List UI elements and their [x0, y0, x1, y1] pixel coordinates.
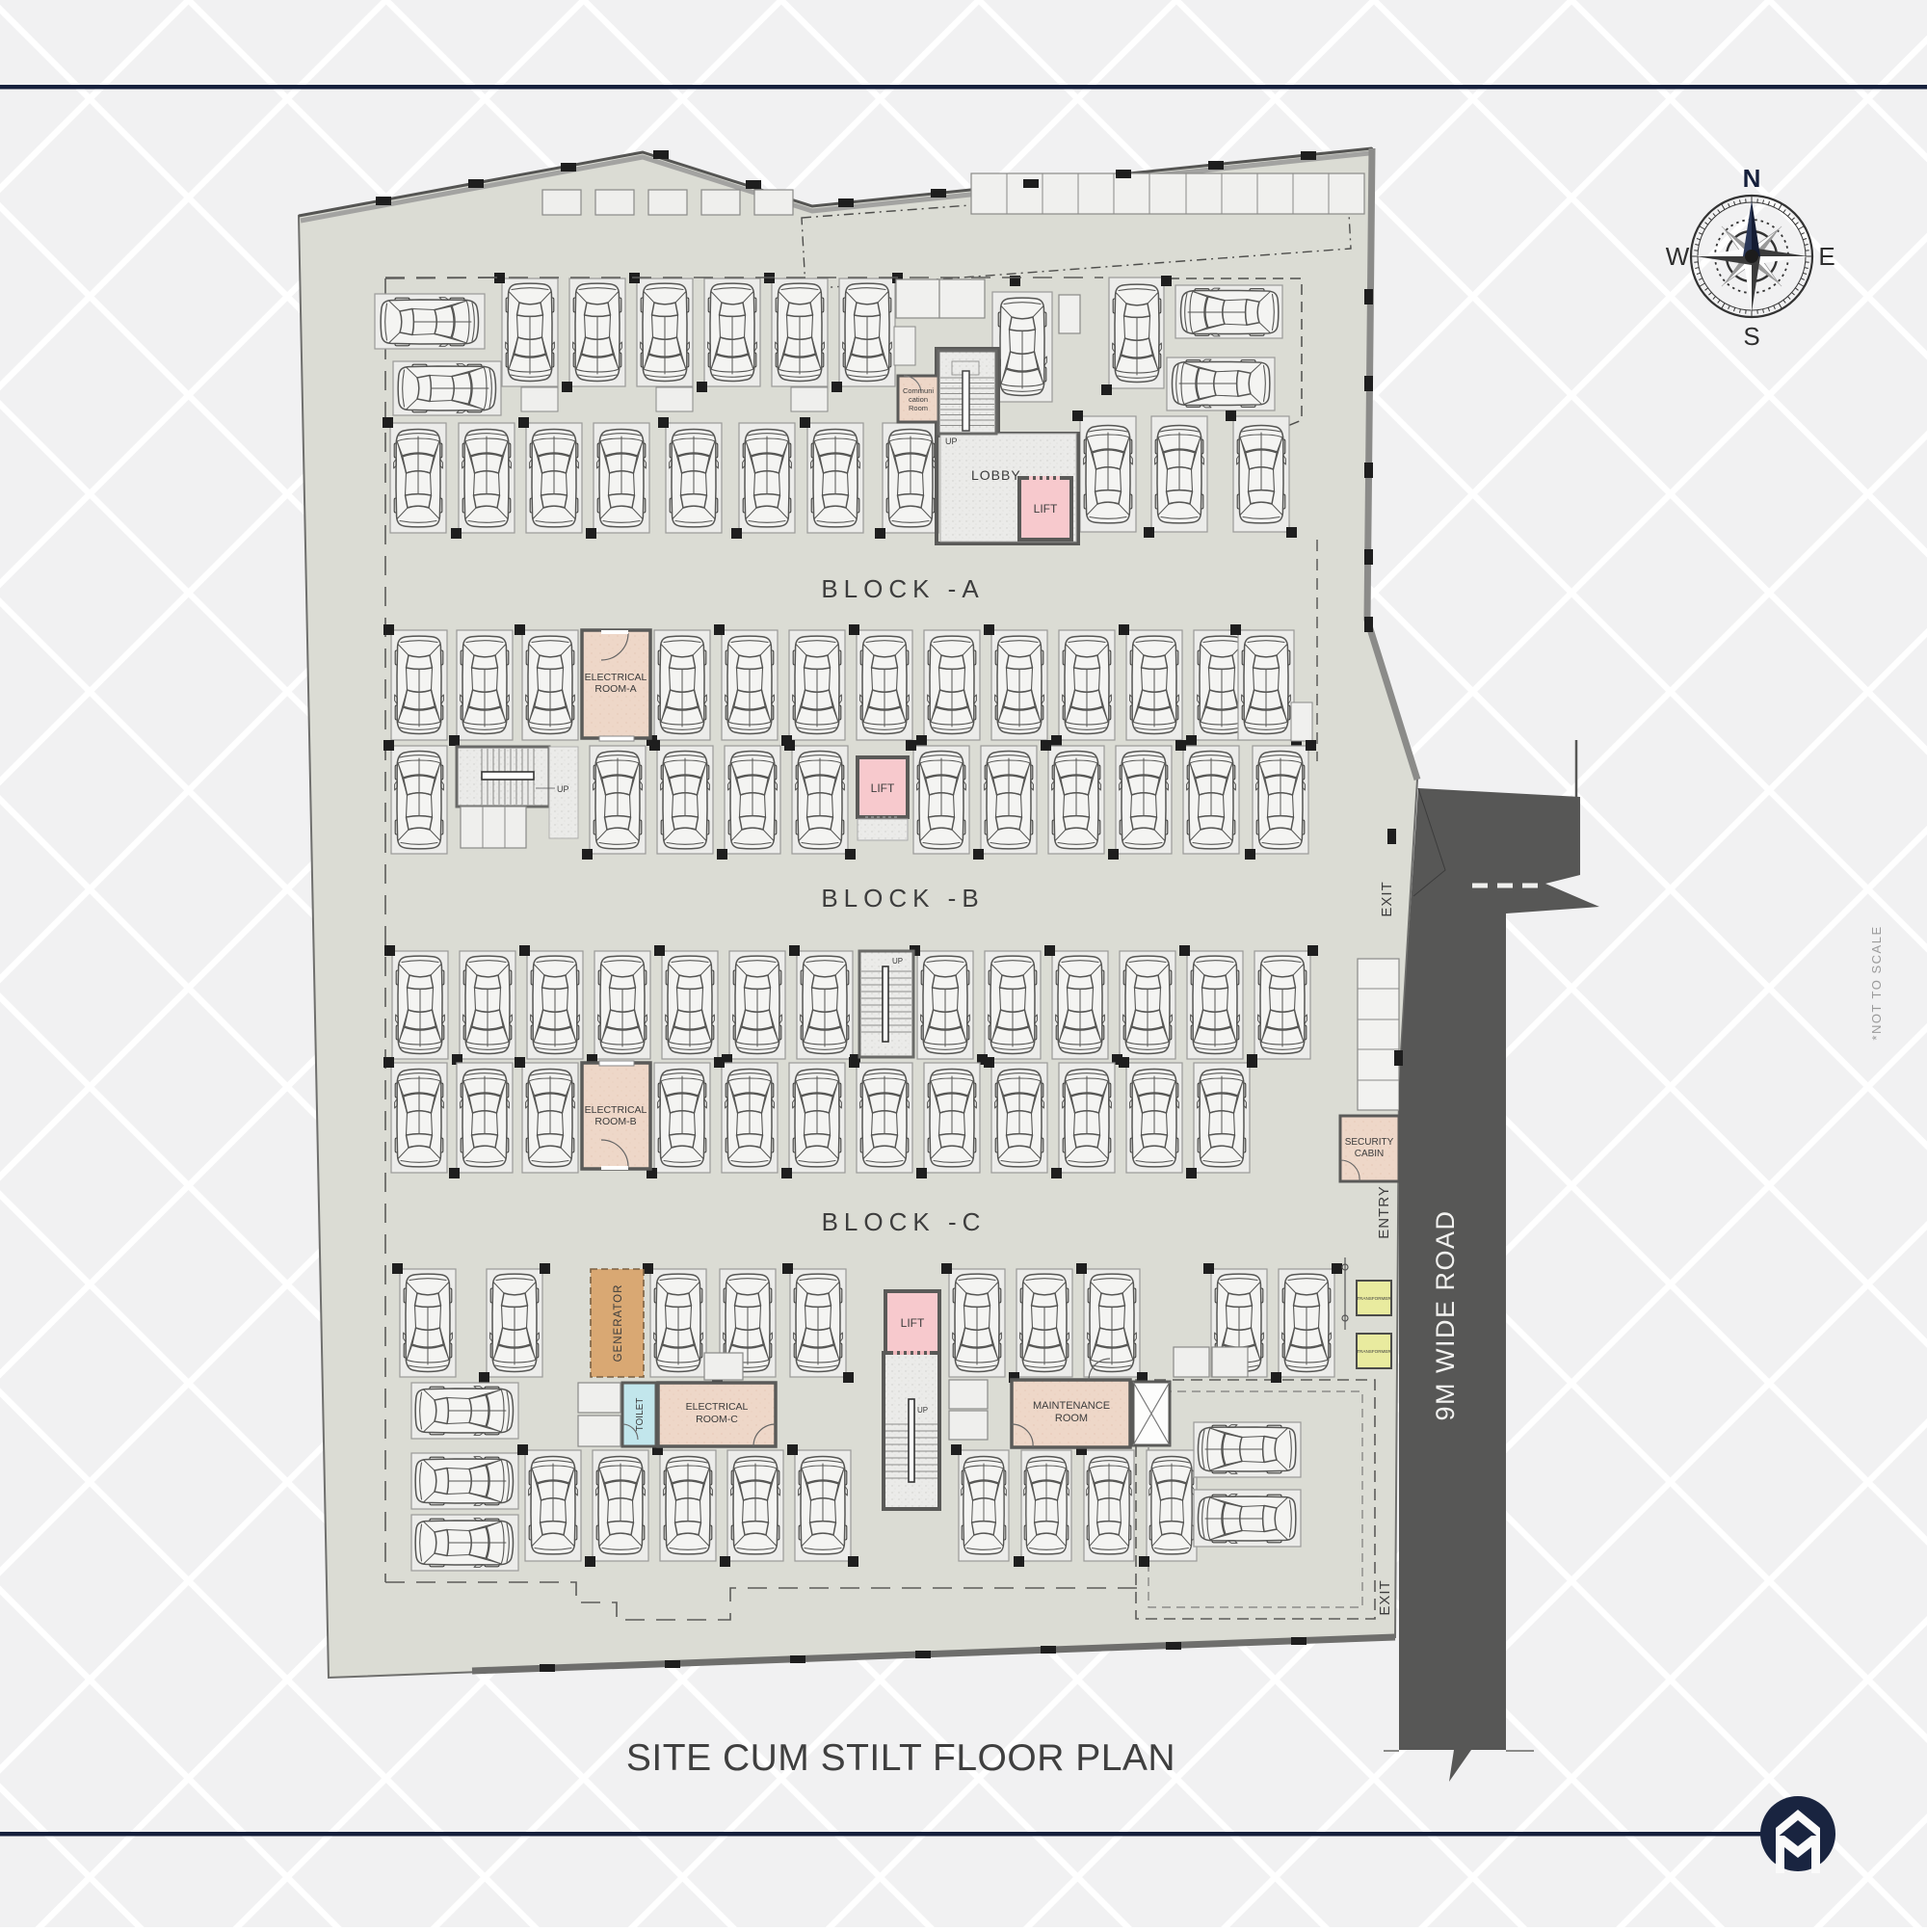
svg-text:ELECTRICAL: ELECTRICAL: [686, 1401, 749, 1413]
svg-text:ROOM-B: ROOM-B: [594, 1116, 636, 1127]
svg-text:Room: Room: [909, 404, 928, 412]
svg-text:EXIT: EXIT: [1379, 881, 1395, 916]
svg-text:LIFT: LIFT: [1034, 502, 1058, 516]
svg-text:UP: UP: [892, 957, 903, 966]
svg-text:ROOM-C: ROOM-C: [696, 1414, 738, 1425]
svg-text:MAINTENANCE: MAINTENANCE: [1033, 1400, 1110, 1412]
svg-text:TOILET: TOILET: [635, 1398, 646, 1432]
svg-text:cation: cation: [909, 395, 928, 404]
svg-text:BLOCK -C: BLOCK -C: [822, 1207, 987, 1236]
svg-text:E: E: [1818, 242, 1835, 271]
svg-text:9M WIDE ROAD: 9M WIDE ROAD: [1431, 1209, 1460, 1420]
svg-text:BLOCK -B: BLOCK -B: [821, 884, 984, 913]
svg-text:ROOM: ROOM: [1055, 1413, 1088, 1424]
svg-text:*NOT TO SCALE: *NOT TO SCALE: [1869, 925, 1884, 1040]
svg-text:LOBBY: LOBBY: [971, 467, 1021, 483]
svg-text:UP: UP: [917, 1406, 928, 1415]
svg-text:UP: UP: [945, 437, 958, 446]
svg-text:BLOCK -A: BLOCK -A: [821, 574, 984, 603]
svg-text:S: S: [1743, 322, 1759, 351]
svg-text:UP: UP: [557, 784, 569, 794]
svg-text:GENERATOR: GENERATOR: [613, 1284, 624, 1363]
svg-text:ROOM-A: ROOM-A: [594, 683, 636, 695]
svg-text:TRANSFORMER: TRANSFORMER: [1357, 1349, 1391, 1354]
svg-text:SECURITY: SECURITY: [1345, 1137, 1394, 1148]
svg-text:SITE CUM STILT FLOOR PLAN: SITE CUM STILT FLOOR PLAN: [626, 1737, 1175, 1779]
svg-text:N: N: [1743, 164, 1761, 193]
svg-text:EXIT: EXIT: [1377, 1579, 1393, 1615]
svg-text:Communi: Communi: [903, 386, 934, 395]
svg-text:W: W: [1666, 242, 1690, 271]
svg-text:ELECTRICAL: ELECTRICAL: [585, 672, 647, 683]
svg-text:LIFT: LIFT: [901, 1316, 925, 1330]
svg-text:ELECTRICAL: ELECTRICAL: [585, 1104, 647, 1116]
svg-text:TRANSFORMER: TRANSFORMER: [1357, 1296, 1391, 1301]
svg-text:CABIN: CABIN: [1355, 1149, 1385, 1159]
svg-text:ENTRY: ENTRY: [1376, 1185, 1392, 1239]
svg-text:LIFT: LIFT: [871, 781, 895, 795]
